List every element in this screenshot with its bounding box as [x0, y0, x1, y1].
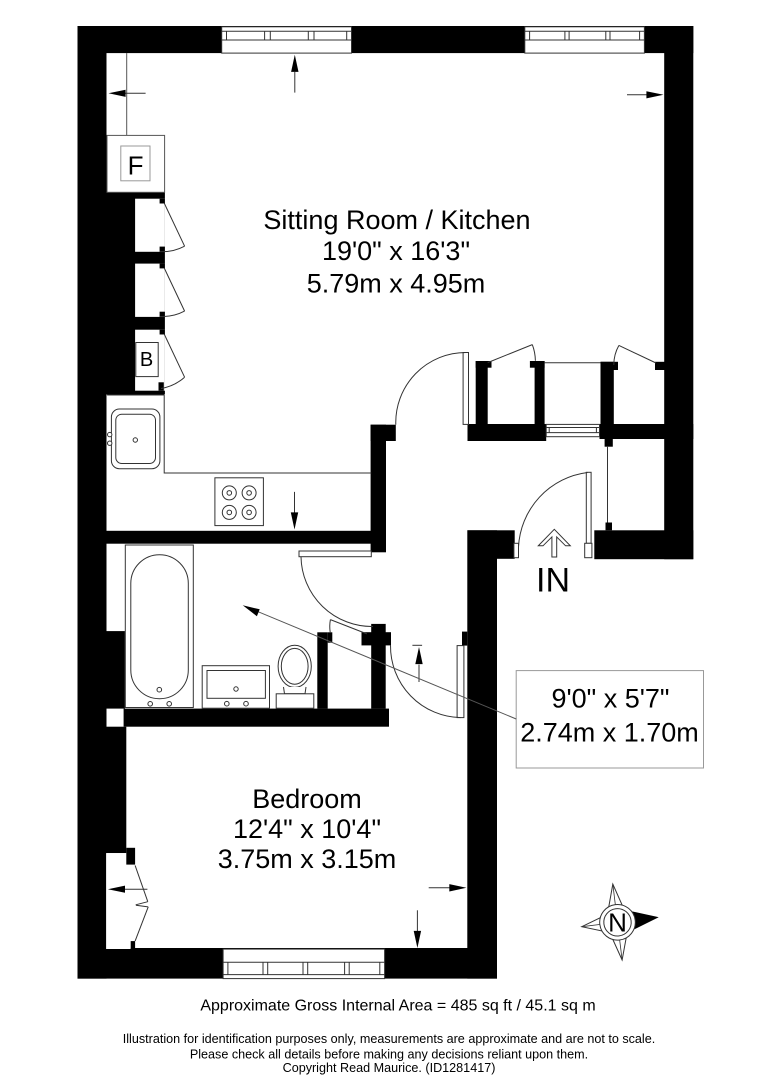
svg-text:2.74m x 1.70m: 2.74m x 1.70m	[520, 717, 699, 747]
svg-text:N: N	[608, 907, 627, 937]
svg-text:B: B	[140, 349, 153, 371]
svg-text:Approximate Gross Internal Are: Approximate Gross Internal Area = 485 sq…	[200, 998, 595, 1015]
svg-text:3.75m x 3.15m: 3.75m x 3.15m	[218, 844, 397, 874]
svg-text:Illustration for identificatio: Illustration for identification purposes…	[123, 1032, 656, 1046]
svg-text:12'4" x 10'4": 12'4" x 10'4"	[233, 814, 381, 844]
svg-text:Sitting Room / Kitchen: Sitting Room / Kitchen	[263, 205, 530, 235]
svg-text:IN: IN	[536, 562, 570, 600]
svg-text:Please check all details befor: Please check all details before making a…	[190, 1047, 588, 1061]
svg-text:F: F	[128, 151, 144, 181]
svg-text:9'0" x 5'7": 9'0" x 5'7"	[551, 684, 669, 714]
svg-text:Bedroom: Bedroom	[252, 784, 362, 814]
svg-text:5.79m x 4.95m: 5.79m x 4.95m	[307, 269, 486, 299]
svg-text:19'0" x 16'3": 19'0" x 16'3"	[322, 236, 470, 266]
svg-text:Copyright Read Maurice. (ID128: Copyright Read Maurice. (ID1281417)	[283, 1061, 496, 1075]
